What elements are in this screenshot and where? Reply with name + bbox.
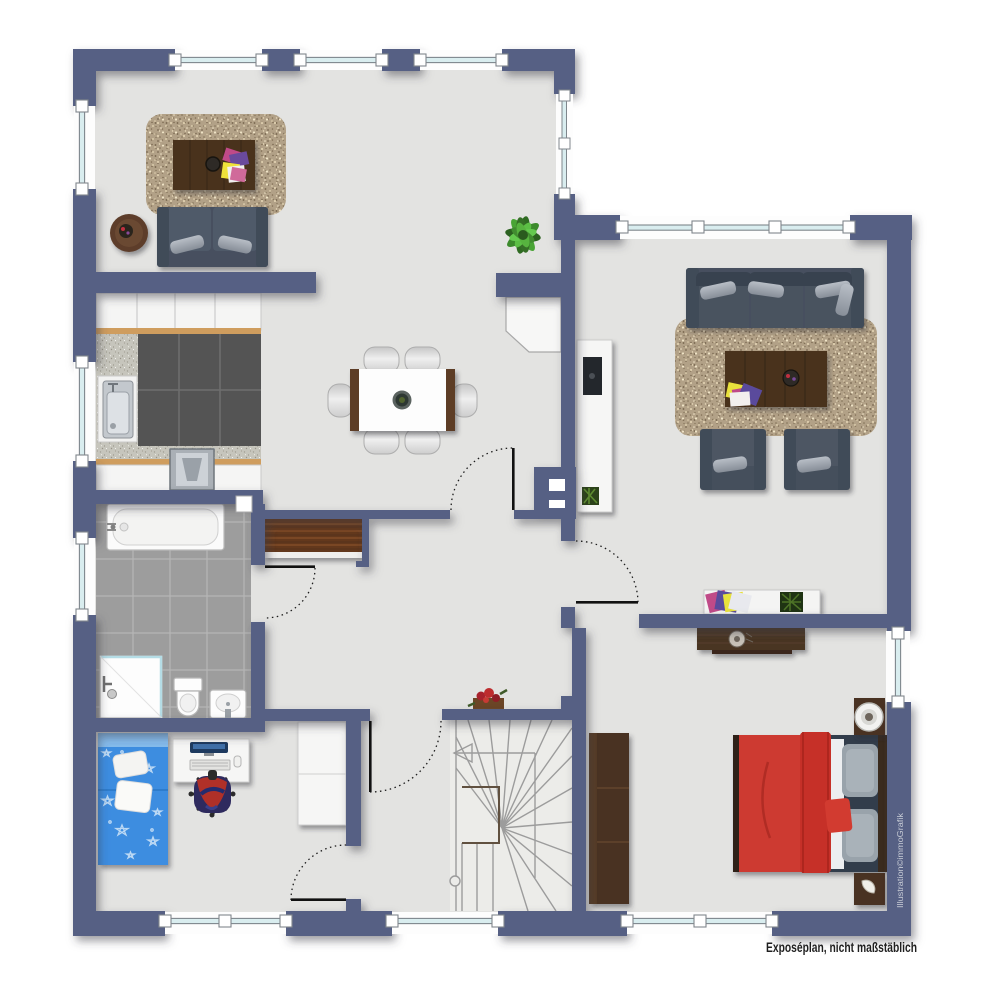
svg-text:Illustration©immoGrafik: Illustration©immoGrafik [895, 812, 905, 908]
svg-text:Exposéplan, nicht maßstäblich: Exposéplan, nicht maßstäblich [766, 940, 917, 955]
